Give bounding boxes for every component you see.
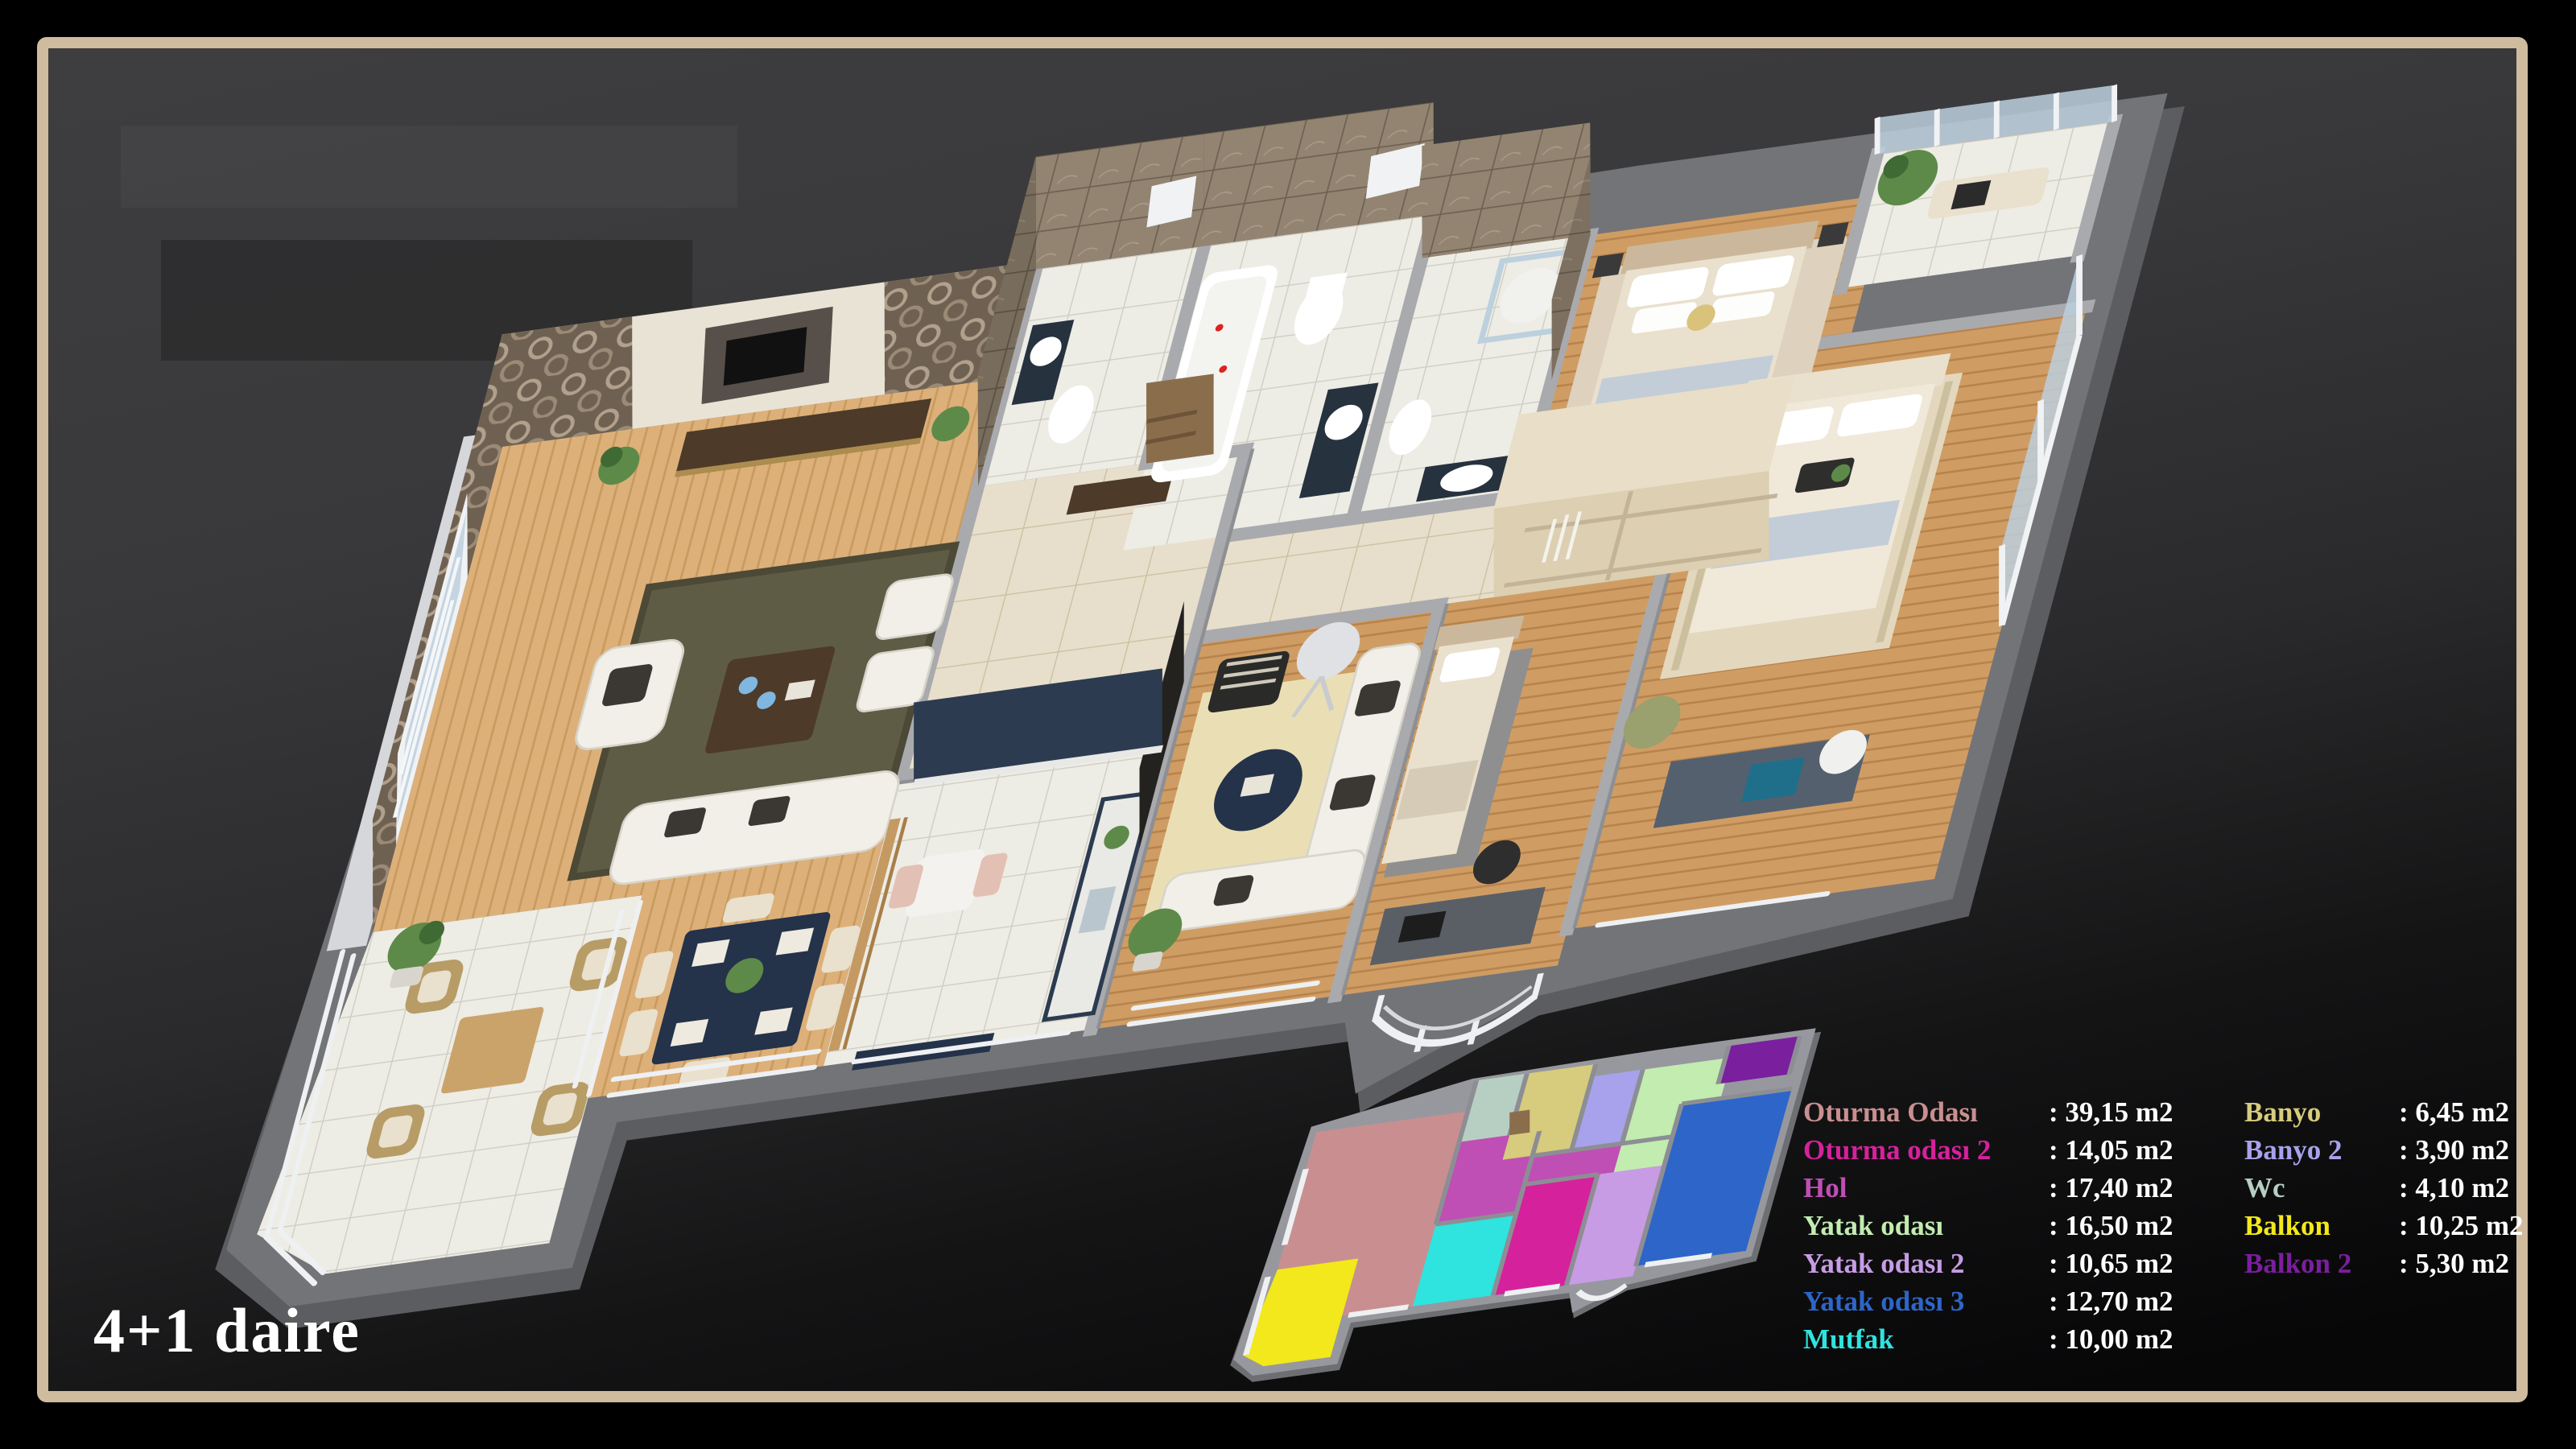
legend-row: Oturma Odası: 39,15 m2 bbox=[1803, 1093, 2222, 1131]
legend-label: Balkon bbox=[2244, 1207, 2399, 1245]
legend-value: : 5,30 m2 bbox=[2399, 1245, 2509, 1282]
legend-value: : 6,45 m2 bbox=[2399, 1093, 2509, 1131]
poster: Oturma Odası: 39,15 m2 Oturma odası 2: 1… bbox=[0, 0, 2576, 1449]
legend-label: Yatak odası bbox=[1803, 1207, 2049, 1245]
legend-label: Balkon 2 bbox=[2244, 1245, 2399, 1282]
legend-row: Mutfak: 10,00 m2 bbox=[1803, 1320, 2222, 1358]
legend-column-right: Banyo: 6,45 m2 Banyo 2: 3,90 m2 Wc: 4,10… bbox=[2244, 1093, 2576, 1282]
legend-row: Yatak odası 3: 12,70 m2 bbox=[1803, 1282, 2222, 1320]
legend-label: Yatak odası 3 bbox=[1803, 1282, 2049, 1320]
legend-value: : 10,00 m2 bbox=[2049, 1320, 2173, 1358]
legend-value: : 10,65 m2 bbox=[2049, 1245, 2173, 1282]
legend-value: : 39,15 m2 bbox=[2049, 1093, 2173, 1131]
legend-value: : 17,40 m2 bbox=[2049, 1169, 2173, 1207]
legend-row: Banyo: 6,45 m2 bbox=[2244, 1093, 2576, 1131]
legend-row: Banyo 2: 3,90 m2 bbox=[2244, 1131, 2576, 1169]
legend-label: Yatak odası 2 bbox=[1803, 1245, 2049, 1282]
legend-value: : 10,25 m2 bbox=[2399, 1207, 2524, 1245]
legend-row: Balkon 2: 5,30 m2 bbox=[2244, 1245, 2576, 1282]
legend-label: Hol bbox=[1803, 1169, 2049, 1207]
legend-row: Hol: 17,40 m2 bbox=[1803, 1169, 2222, 1207]
page-title: 4+1 daire bbox=[93, 1294, 361, 1367]
legend-row: Yatak odası: 16,50 m2 bbox=[1803, 1207, 2222, 1245]
legend-label: Wc bbox=[2244, 1169, 2399, 1207]
legend-row: Wc: 4,10 m2 bbox=[2244, 1169, 2576, 1207]
legend-value: : 3,90 m2 bbox=[2399, 1131, 2509, 1169]
legend-row: Oturma odası 2: 14,05 m2 bbox=[1803, 1131, 2222, 1169]
legend-label: Oturma odası 2 bbox=[1803, 1131, 2049, 1169]
legend-value: : 12,70 m2 bbox=[2049, 1282, 2173, 1320]
legend-column-left: Oturma Odası: 39,15 m2 Oturma odası 2: 1… bbox=[1803, 1093, 2222, 1358]
legend-value: : 14,05 m2 bbox=[2049, 1131, 2173, 1169]
legend-label: Oturma Odası bbox=[1803, 1093, 2049, 1131]
legend-row: Balkon: 10,25 m2 bbox=[2244, 1207, 2576, 1245]
legend-label: Mutfak bbox=[1803, 1320, 2049, 1358]
legend-label: Banyo bbox=[2244, 1093, 2399, 1131]
legend-value: : 4,10 m2 bbox=[2399, 1169, 2509, 1207]
legend-row: Yatak odası 2: 10,65 m2 bbox=[1803, 1245, 2222, 1282]
minimap bbox=[1224, 1027, 1823, 1385]
legend-value: : 16,50 m2 bbox=[2049, 1207, 2173, 1245]
legend-label: Banyo 2 bbox=[2244, 1131, 2399, 1169]
